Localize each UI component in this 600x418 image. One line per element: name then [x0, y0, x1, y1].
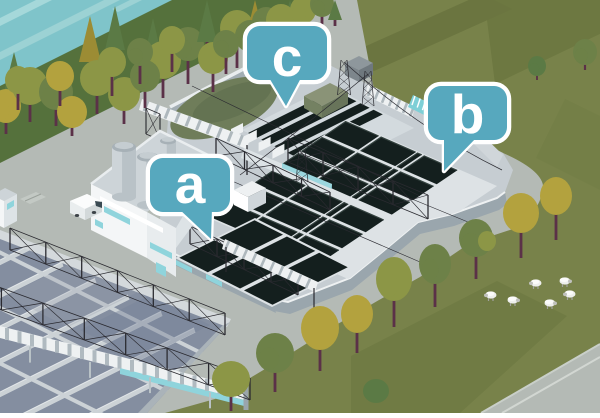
svg-text:b: b: [451, 83, 485, 145]
svg-text:a: a: [175, 153, 206, 215]
svg-text:c: c: [272, 26, 303, 88]
